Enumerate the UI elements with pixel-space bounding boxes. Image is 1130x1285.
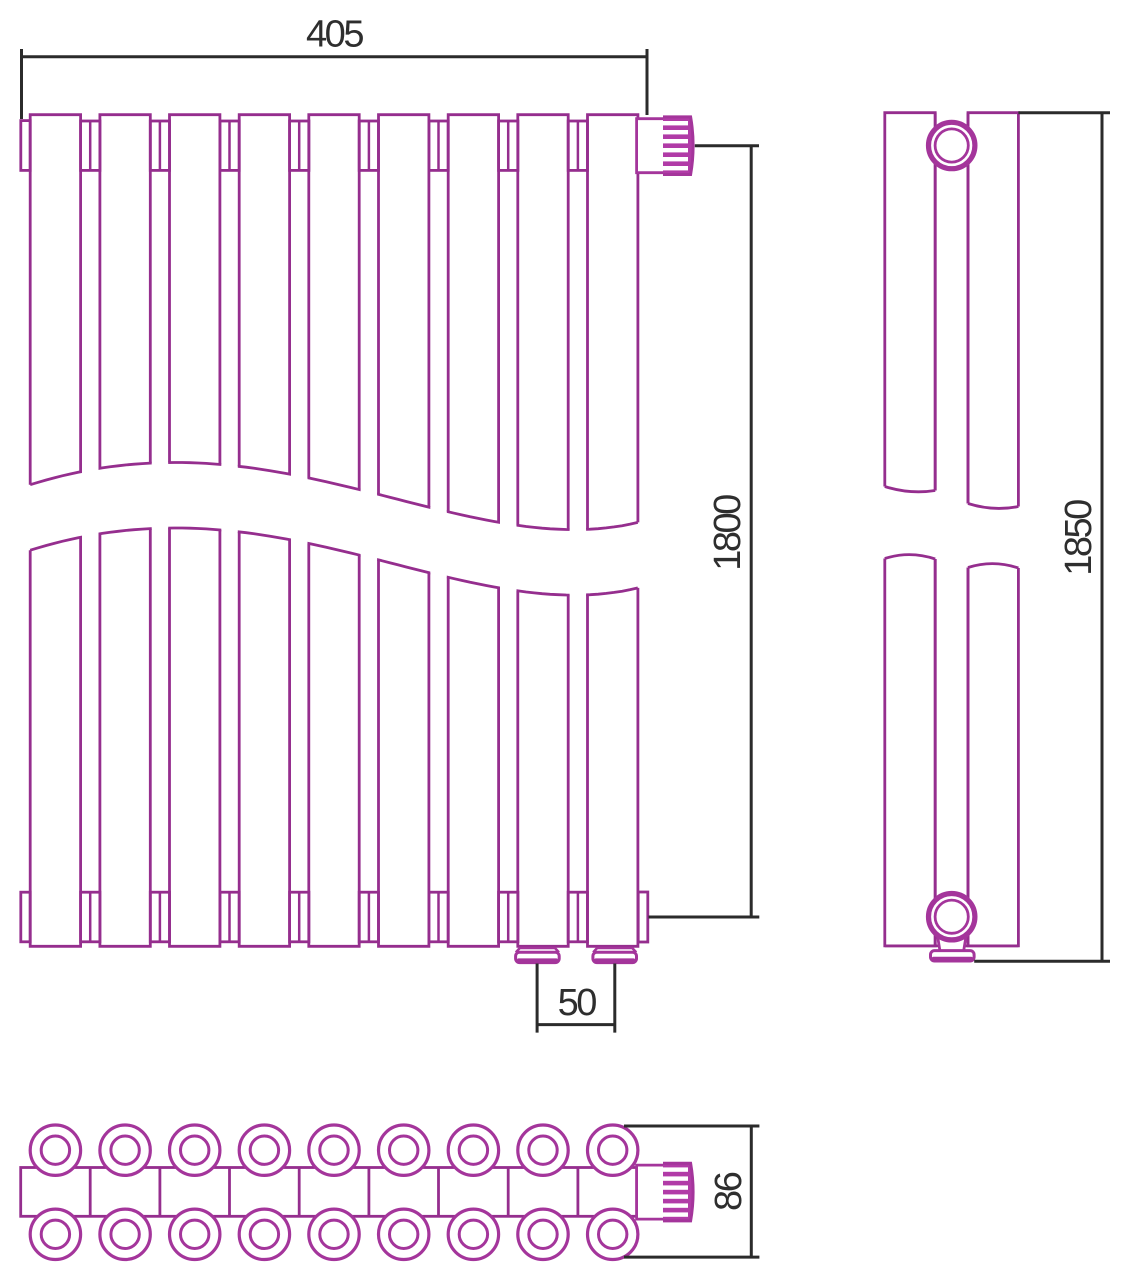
svg-text:1850: 1850 [1058,500,1100,576]
svg-text:86: 86 [708,1172,750,1211]
svg-text:50: 50 [558,982,597,1024]
svg-text:1800: 1800 [707,495,749,571]
svg-text:405: 405 [306,14,363,56]
